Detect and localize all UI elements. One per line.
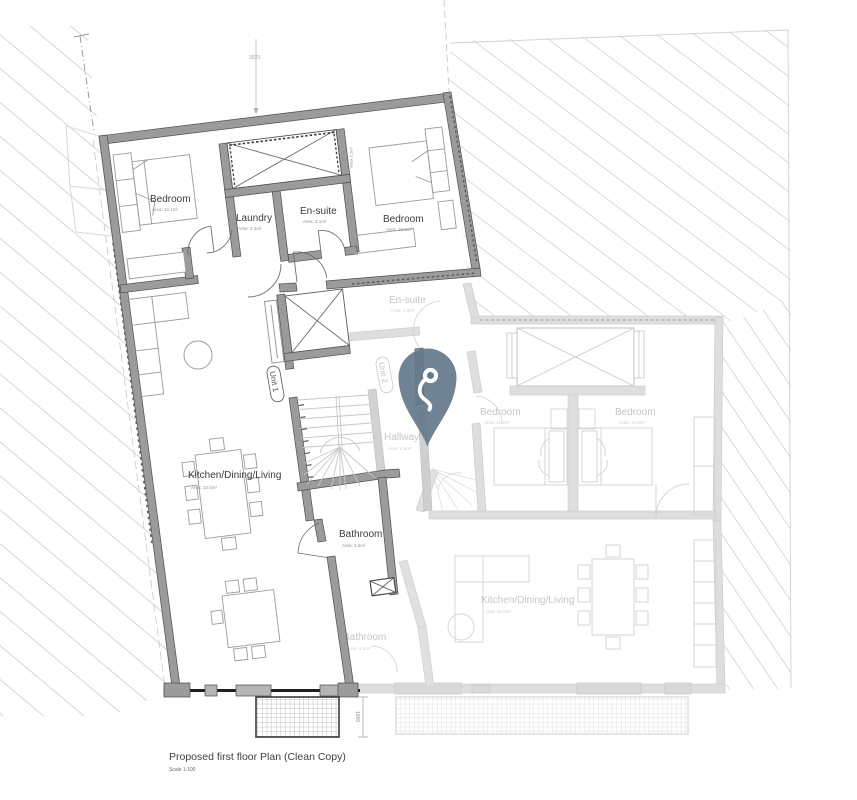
svg-text:En-suite: En-suite	[389, 295, 426, 306]
svg-text:Area: 10.5m²: Area: 10.5m²	[619, 420, 646, 425]
svg-text:Velux 2.1m²: Velux 2.1m²	[349, 147, 354, 169]
svg-text:Area: 4.5m²: Area: 4.5m²	[391, 308, 415, 313]
svg-text:Bedroom: Bedroom	[615, 407, 656, 418]
svg-text:Kitchen/Dining/Living: Kitchen/Dining/Living	[188, 470, 281, 481]
svg-text:Velux 2.1m²: Velux 2.1m²	[228, 161, 233, 183]
svg-text:En-suite: En-suite	[300, 206, 337, 217]
svg-text:Laundry: Laundry	[236, 213, 272, 224]
svg-text:Area: 16.3m²: Area: 16.3m²	[386, 227, 413, 232]
svg-text:Area: 2.4m²: Area: 2.4m²	[238, 226, 262, 231]
svg-text:Area: 4.5m²: Area: 4.5m²	[342, 543, 366, 548]
svg-text:3023: 3023	[249, 55, 260, 61]
svg-text:Area: 3.1m²: Area: 3.1m²	[303, 219, 327, 224]
svg-text:Area: 12.1m²: Area: 12.1m²	[152, 207, 179, 212]
svg-text:Proposed first floor Plan (Cle: Proposed first floor Plan (Clean Copy)	[169, 751, 346, 763]
svg-text:Area: 32.5m²: Area: 32.5m²	[191, 485, 218, 490]
svg-text:Bedroom: Bedroom	[150, 194, 191, 205]
svg-text:Area: 41.6m²: Area: 41.6m²	[485, 609, 512, 614]
svg-text:Bedroom: Bedroom	[480, 407, 521, 418]
svg-text:Area: 5.5m²: Area: 5.5m²	[388, 446, 412, 451]
svg-text:Area: 12.4m²: Area: 12.4m²	[484, 420, 511, 425]
svg-text:Bathroom: Bathroom	[339, 529, 382, 540]
svg-text:Bathroom: Bathroom	[343, 632, 386, 643]
svg-text:Bedroom: Bedroom	[383, 214, 424, 225]
svg-text:Area: 4.5m²: Area: 4.5m²	[347, 646, 371, 651]
svg-text:1000: 1000	[354, 711, 360, 722]
svg-text:Kitchen/Dining/Living: Kitchen/Dining/Living	[481, 595, 574, 606]
svg-text:Scale 1:100: Scale 1:100	[169, 767, 196, 773]
svg-text:Hallway: Hallway	[384, 432, 419, 443]
